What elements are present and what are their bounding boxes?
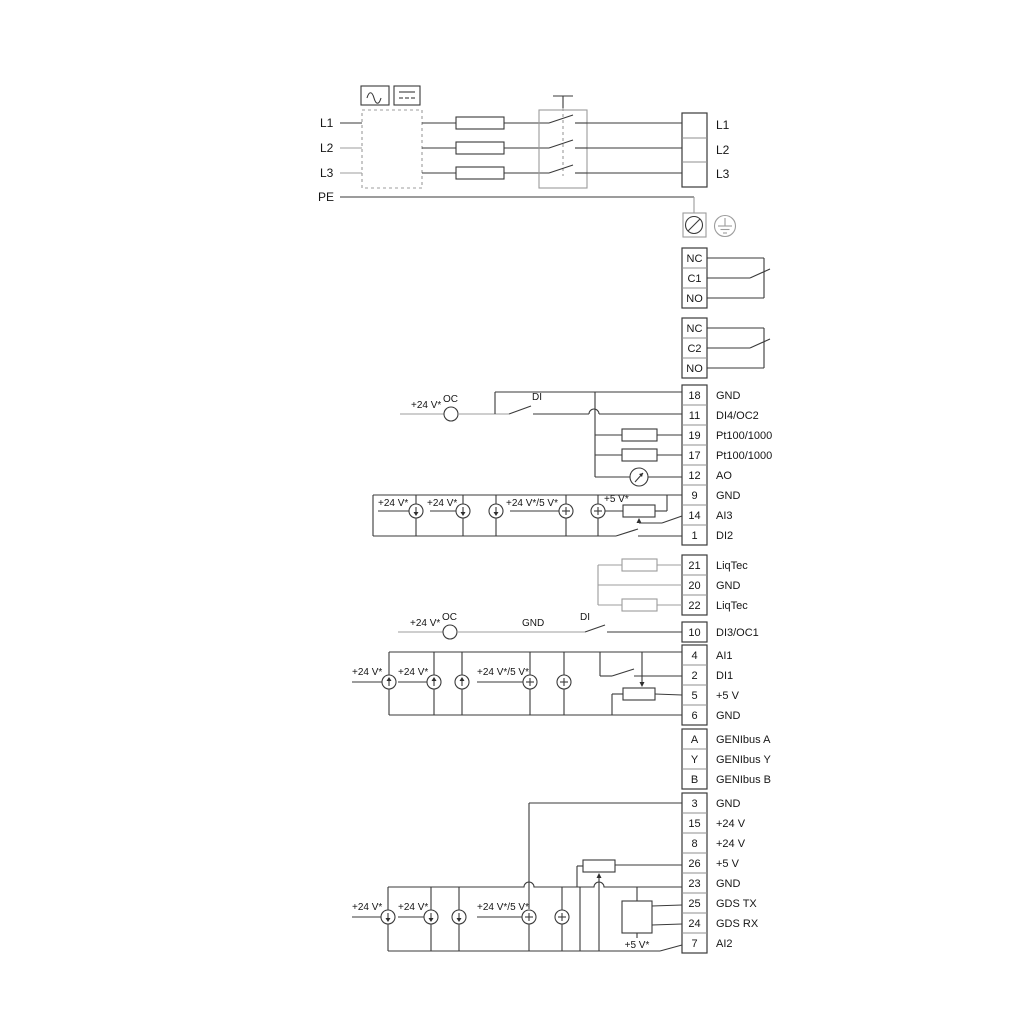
t19-num: 19 [688, 430, 700, 442]
ai3-v245-label: +24 V*/5 V* [506, 498, 558, 509]
t8-num: 8 [691, 838, 697, 850]
pt100-sensor-2 [595, 449, 682, 461]
oc-output-icon [444, 407, 458, 421]
t3-label: GND [716, 798, 741, 810]
power-out-l2-label: L2 [716, 143, 730, 157]
ai3-v5-label: +5 V* [604, 494, 629, 505]
current-source-down-icon [456, 504, 470, 518]
current-source-up-icon [455, 675, 469, 689]
t24-num: 24 [688, 918, 700, 930]
ai1-supply-group: +24 V* +24 V* +24 V*/5 V* [352, 652, 682, 715]
t25-num: 25 [688, 898, 700, 910]
tY-label: GENIbus Y [716, 754, 771, 766]
di3-oc-label: OC [442, 612, 457, 623]
t20-label: GND [716, 580, 741, 592]
t12-num: 12 [688, 470, 700, 482]
converter-box [362, 110, 422, 188]
power-in-l2-label: L2 [320, 141, 334, 155]
dc-icon [394, 86, 420, 105]
relay1-c1: C1 [687, 273, 701, 285]
io-mid-block: 4 AI1 2 DI1 5 +5 V 6 GND [682, 645, 741, 725]
current-source-down-icon [381, 910, 395, 924]
ai2-v24b-label: +24 V* [398, 902, 428, 913]
t26-label: +5 V [716, 858, 740, 870]
t21-label: LiqTec [716, 560, 748, 572]
ai1-v245-label: +24 V*/5 V* [477, 667, 529, 678]
t17-label: Pt100/1000 [716, 450, 772, 462]
di3-gnd-label: GND [522, 618, 544, 629]
power-terminal-block [682, 113, 707, 187]
voltage-source-icon [557, 675, 571, 689]
t6-num: 6 [691, 710, 697, 722]
ai3-supply-group: +24 V* +24 V* +24 V*/5 V* +5 V* [373, 494, 682, 536]
t15-label: +24 V [716, 818, 746, 830]
potentiometer-icon [623, 688, 655, 700]
voltage-source-icon [522, 910, 536, 924]
resistor-icon [622, 599, 657, 611]
main-switch [539, 96, 587, 188]
relay2-c2: C2 [687, 343, 701, 355]
ai3-v24b-label: +24 V* [427, 498, 457, 509]
tB-num: B [691, 774, 698, 786]
fuse-l3 [456, 167, 504, 179]
gds-sensor: +5 V* [622, 887, 682, 951]
relay2-nc: NC [687, 323, 703, 335]
t8-label: +24 V [716, 838, 746, 850]
t23-label: GND [716, 878, 741, 890]
t5-label: +5 V [716, 690, 740, 702]
current-source-down-icon [424, 910, 438, 924]
resistor-icon [622, 449, 657, 461]
current-source-down-icon [452, 910, 466, 924]
t2-num: 2 [691, 670, 697, 682]
tY-num: Y [691, 754, 699, 766]
di3-circuit: 10 DI3/OC1 +24 V* OC GND DI [398, 612, 759, 642]
t12-label: AO [716, 470, 732, 482]
voltage-source-icon [591, 504, 605, 518]
potentiometer-icon [583, 860, 615, 872]
di3-v24-label: +24 V* [410, 618, 440, 629]
t17-num: 17 [688, 450, 700, 462]
t22-label: LiqTec [716, 600, 748, 612]
liqtec-block: 21 LiqTec 20 GND 22 LiqTec [598, 555, 748, 615]
power-in-pe-label: PE [318, 190, 334, 204]
t2-label: DI1 [716, 670, 733, 682]
t21-num: 21 [688, 560, 700, 572]
io-top-block: 18 GND 11 DI4/OC2 19 Pt100/1000 17 Pt100… [682, 385, 772, 545]
ai1-v24b-label: +24 V* [398, 667, 428, 678]
t14-label: AI3 [716, 510, 733, 522]
ai2-v245-label: +24 V*/5 V* [477, 902, 529, 913]
t22-num: 22 [688, 600, 700, 612]
t7-num: 7 [691, 938, 697, 950]
di4-di-label: DI [532, 392, 542, 403]
current-source-up-icon [427, 675, 441, 689]
di4-oc-label: OC [443, 394, 458, 405]
power-out-l1-label: L1 [716, 118, 730, 132]
relay2-block: NC C2 NO [682, 318, 770, 378]
t14-num: 14 [688, 510, 700, 522]
relay1-nc: NC [687, 253, 703, 265]
oc-output-icon [443, 625, 457, 639]
di4-v24-label: +24 V* [411, 400, 441, 411]
current-source-down-icon [409, 504, 423, 518]
wiring-diagram: L1 L2 L3 PE [0, 0, 1024, 1024]
t10-label: DI3/OC1 [716, 627, 759, 639]
relay1-no: NO [686, 293, 703, 305]
ao-meter [595, 468, 682, 486]
t19-label: Pt100/1000 [716, 430, 772, 442]
t24-label: GDS RX [716, 918, 759, 930]
di3-di-label: DI [580, 612, 590, 623]
resistor-icon [622, 559, 657, 571]
tB-label: GENIbus B [716, 774, 771, 786]
ai1-v24a-label: +24 V* [352, 667, 382, 678]
relay2-contact [707, 328, 770, 368]
t9-num: 9 [691, 490, 697, 502]
ac-icon [361, 86, 389, 105]
potentiometer-icon [623, 505, 655, 517]
t26-num: 26 [688, 858, 700, 870]
current-source-up-icon [382, 675, 396, 689]
t1-num: 1 [691, 530, 697, 542]
voltage-source-icon [559, 504, 573, 518]
t7-label: AI2 [716, 938, 733, 950]
t6-label: GND [716, 710, 741, 722]
io-bottom-block: 3 GND 15 +24 V 8 +24 V 26 +5 V 23 GND 25… [682, 793, 759, 953]
tA-num: A [691, 734, 699, 746]
fuse-l1 [456, 117, 504, 129]
t18-num: 18 [688, 390, 700, 402]
power-in-l1-label: L1 [320, 116, 334, 130]
power-input-section: L1 L2 L3 PE [318, 86, 736, 237]
t4-num: 4 [691, 650, 697, 662]
t4-label: AI1 [716, 650, 733, 662]
power-out-l3-label: L3 [716, 167, 730, 181]
genibus-block: A GENIbus A Y GENIbus Y B GENIbus B [682, 729, 771, 789]
gds-v5-label: +5 V* [625, 940, 650, 951]
relay1-contact [707, 258, 770, 298]
t23-num: 23 [688, 878, 700, 890]
pe-terminal [683, 213, 706, 237]
t9-label: GND [716, 490, 741, 502]
t5-num: 5 [691, 690, 697, 702]
fuse-l2 [456, 142, 504, 154]
t25-label: GDS TX [716, 898, 757, 910]
voltage-source-icon [555, 910, 569, 924]
t11-label: DI4/OC2 [716, 410, 759, 422]
t20-num: 20 [688, 580, 700, 592]
tA-label: GENIbus A [716, 734, 771, 746]
earth-ground-icon [715, 216, 736, 237]
ai3-v24a-label: +24 V* [378, 498, 408, 509]
t3-num: 3 [691, 798, 697, 810]
liqtec-sensor-wiring [598, 559, 682, 611]
resistor-icon [622, 429, 657, 441]
t1-label: DI2 [716, 530, 733, 542]
current-source-down-icon [489, 504, 503, 518]
ai2-v24a-label: +24 V* [352, 902, 382, 913]
t15-num: 15 [688, 818, 700, 830]
ai2-supply-group: +24 V* +24 V* +24 V*/5 V* [352, 803, 682, 951]
voltage-source-icon [523, 675, 537, 689]
t11-num: 11 [689, 410, 700, 422]
pt100-sensor-1 [595, 429, 682, 441]
power-in-l3-label: L3 [320, 166, 334, 180]
relay1-block: NC C1 NO [682, 248, 770, 308]
t10-num: 10 [688, 627, 700, 639]
relay2-no: NO [686, 363, 703, 375]
t18-label: GND [716, 390, 741, 402]
